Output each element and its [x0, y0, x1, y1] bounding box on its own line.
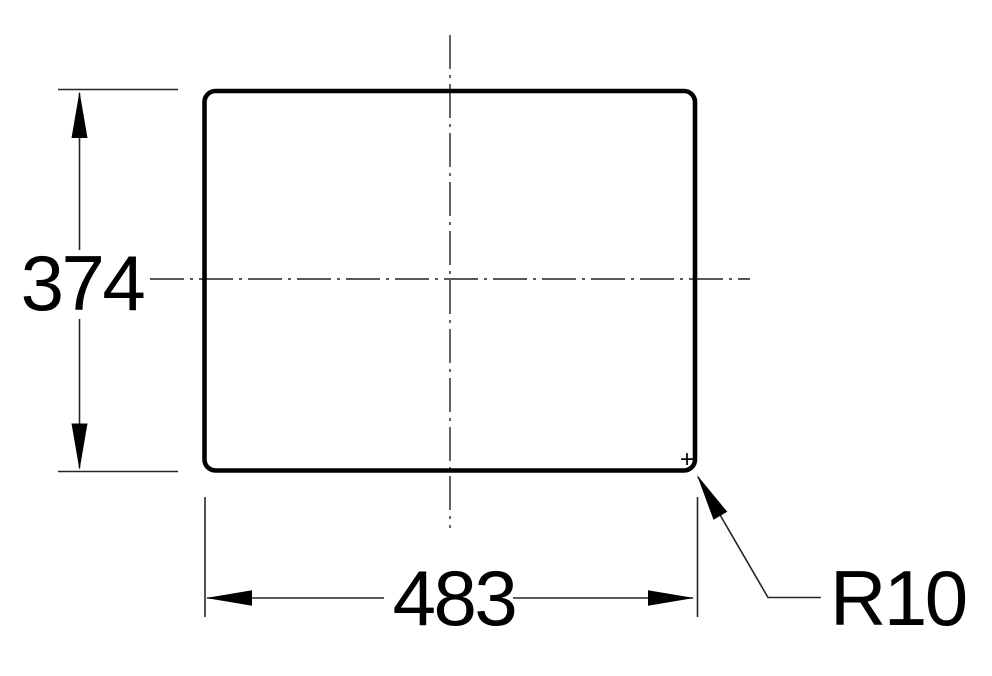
height-arrow-down-icon — [72, 424, 88, 471]
radius-leader-line — [698, 477, 821, 598]
drawing-canvas: + 374 483 R10 — [0, 0, 992, 676]
width-dimension-label: 483 — [393, 554, 516, 642]
dimension-drawing-svg: + 374 483 R10 — [0, 0, 992, 676]
width-arrow-right-icon — [648, 590, 694, 606]
height-arrow-up-icon — [72, 92, 88, 139]
radius-label: R10 — [830, 554, 966, 642]
radius-leader-arrow-icon — [697, 475, 727, 520]
width-arrow-left-icon — [206, 590, 252, 606]
radius-center-mark: + — [680, 446, 694, 473]
height-dimension-label: 374 — [21, 239, 145, 327]
